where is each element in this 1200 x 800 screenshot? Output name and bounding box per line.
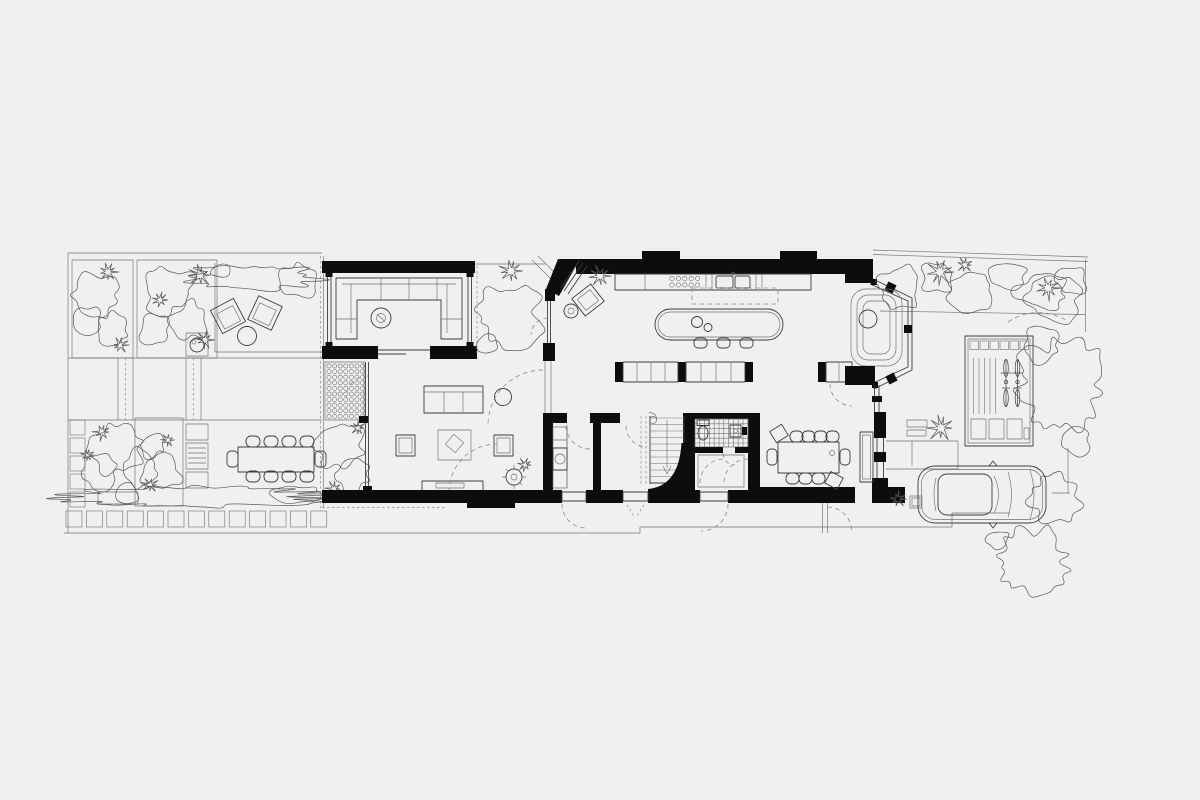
chimney-pilaster (780, 251, 817, 260)
floor-plan-page (0, 0, 1200, 800)
threshold-step (467, 503, 515, 508)
chimney-pilaster (642, 251, 680, 260)
south-wall (322, 490, 562, 503)
floor-plan-drawing (0, 0, 1200, 800)
south-wall (748, 487, 855, 503)
north-wall (576, 259, 873, 274)
